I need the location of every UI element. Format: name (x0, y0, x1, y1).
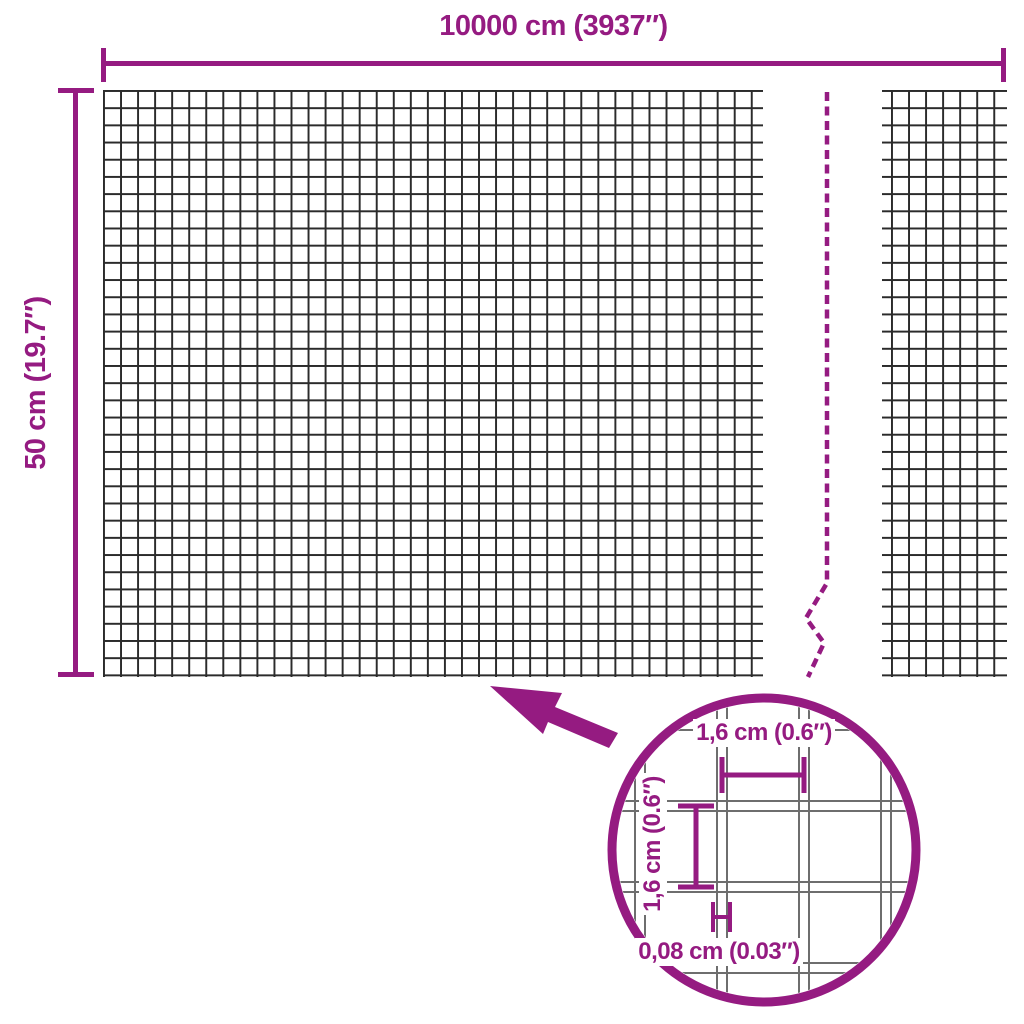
magnifier-circle (612, 698, 916, 1002)
length-break-dashed-line (806, 92, 827, 677)
dimension-diagram: 10000 cm (3937″) 50 cm (19.7″) (0, 0, 1024, 1024)
magnifier-arrow-icon (490, 686, 618, 748)
diagram-vector-layer (0, 0, 1024, 1024)
